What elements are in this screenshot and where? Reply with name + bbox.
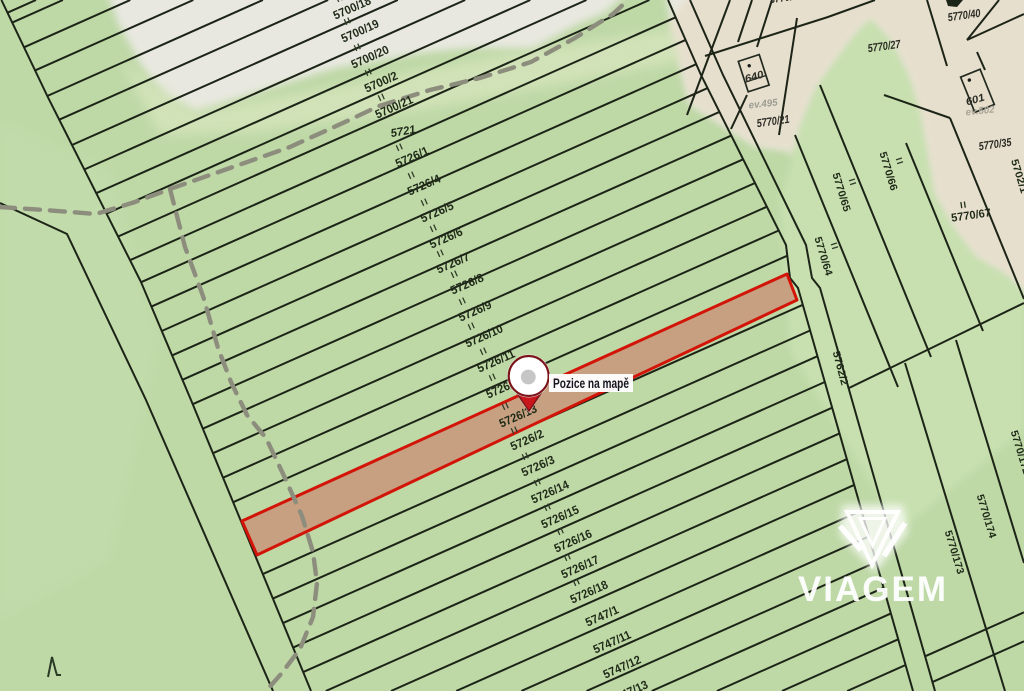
svg-text:Pozice na mapě: Pozice na mapě — [553, 376, 629, 391]
svg-text:VIAGEM: VIAGEM — [798, 570, 948, 609]
svg-text:II: II — [959, 200, 967, 211]
